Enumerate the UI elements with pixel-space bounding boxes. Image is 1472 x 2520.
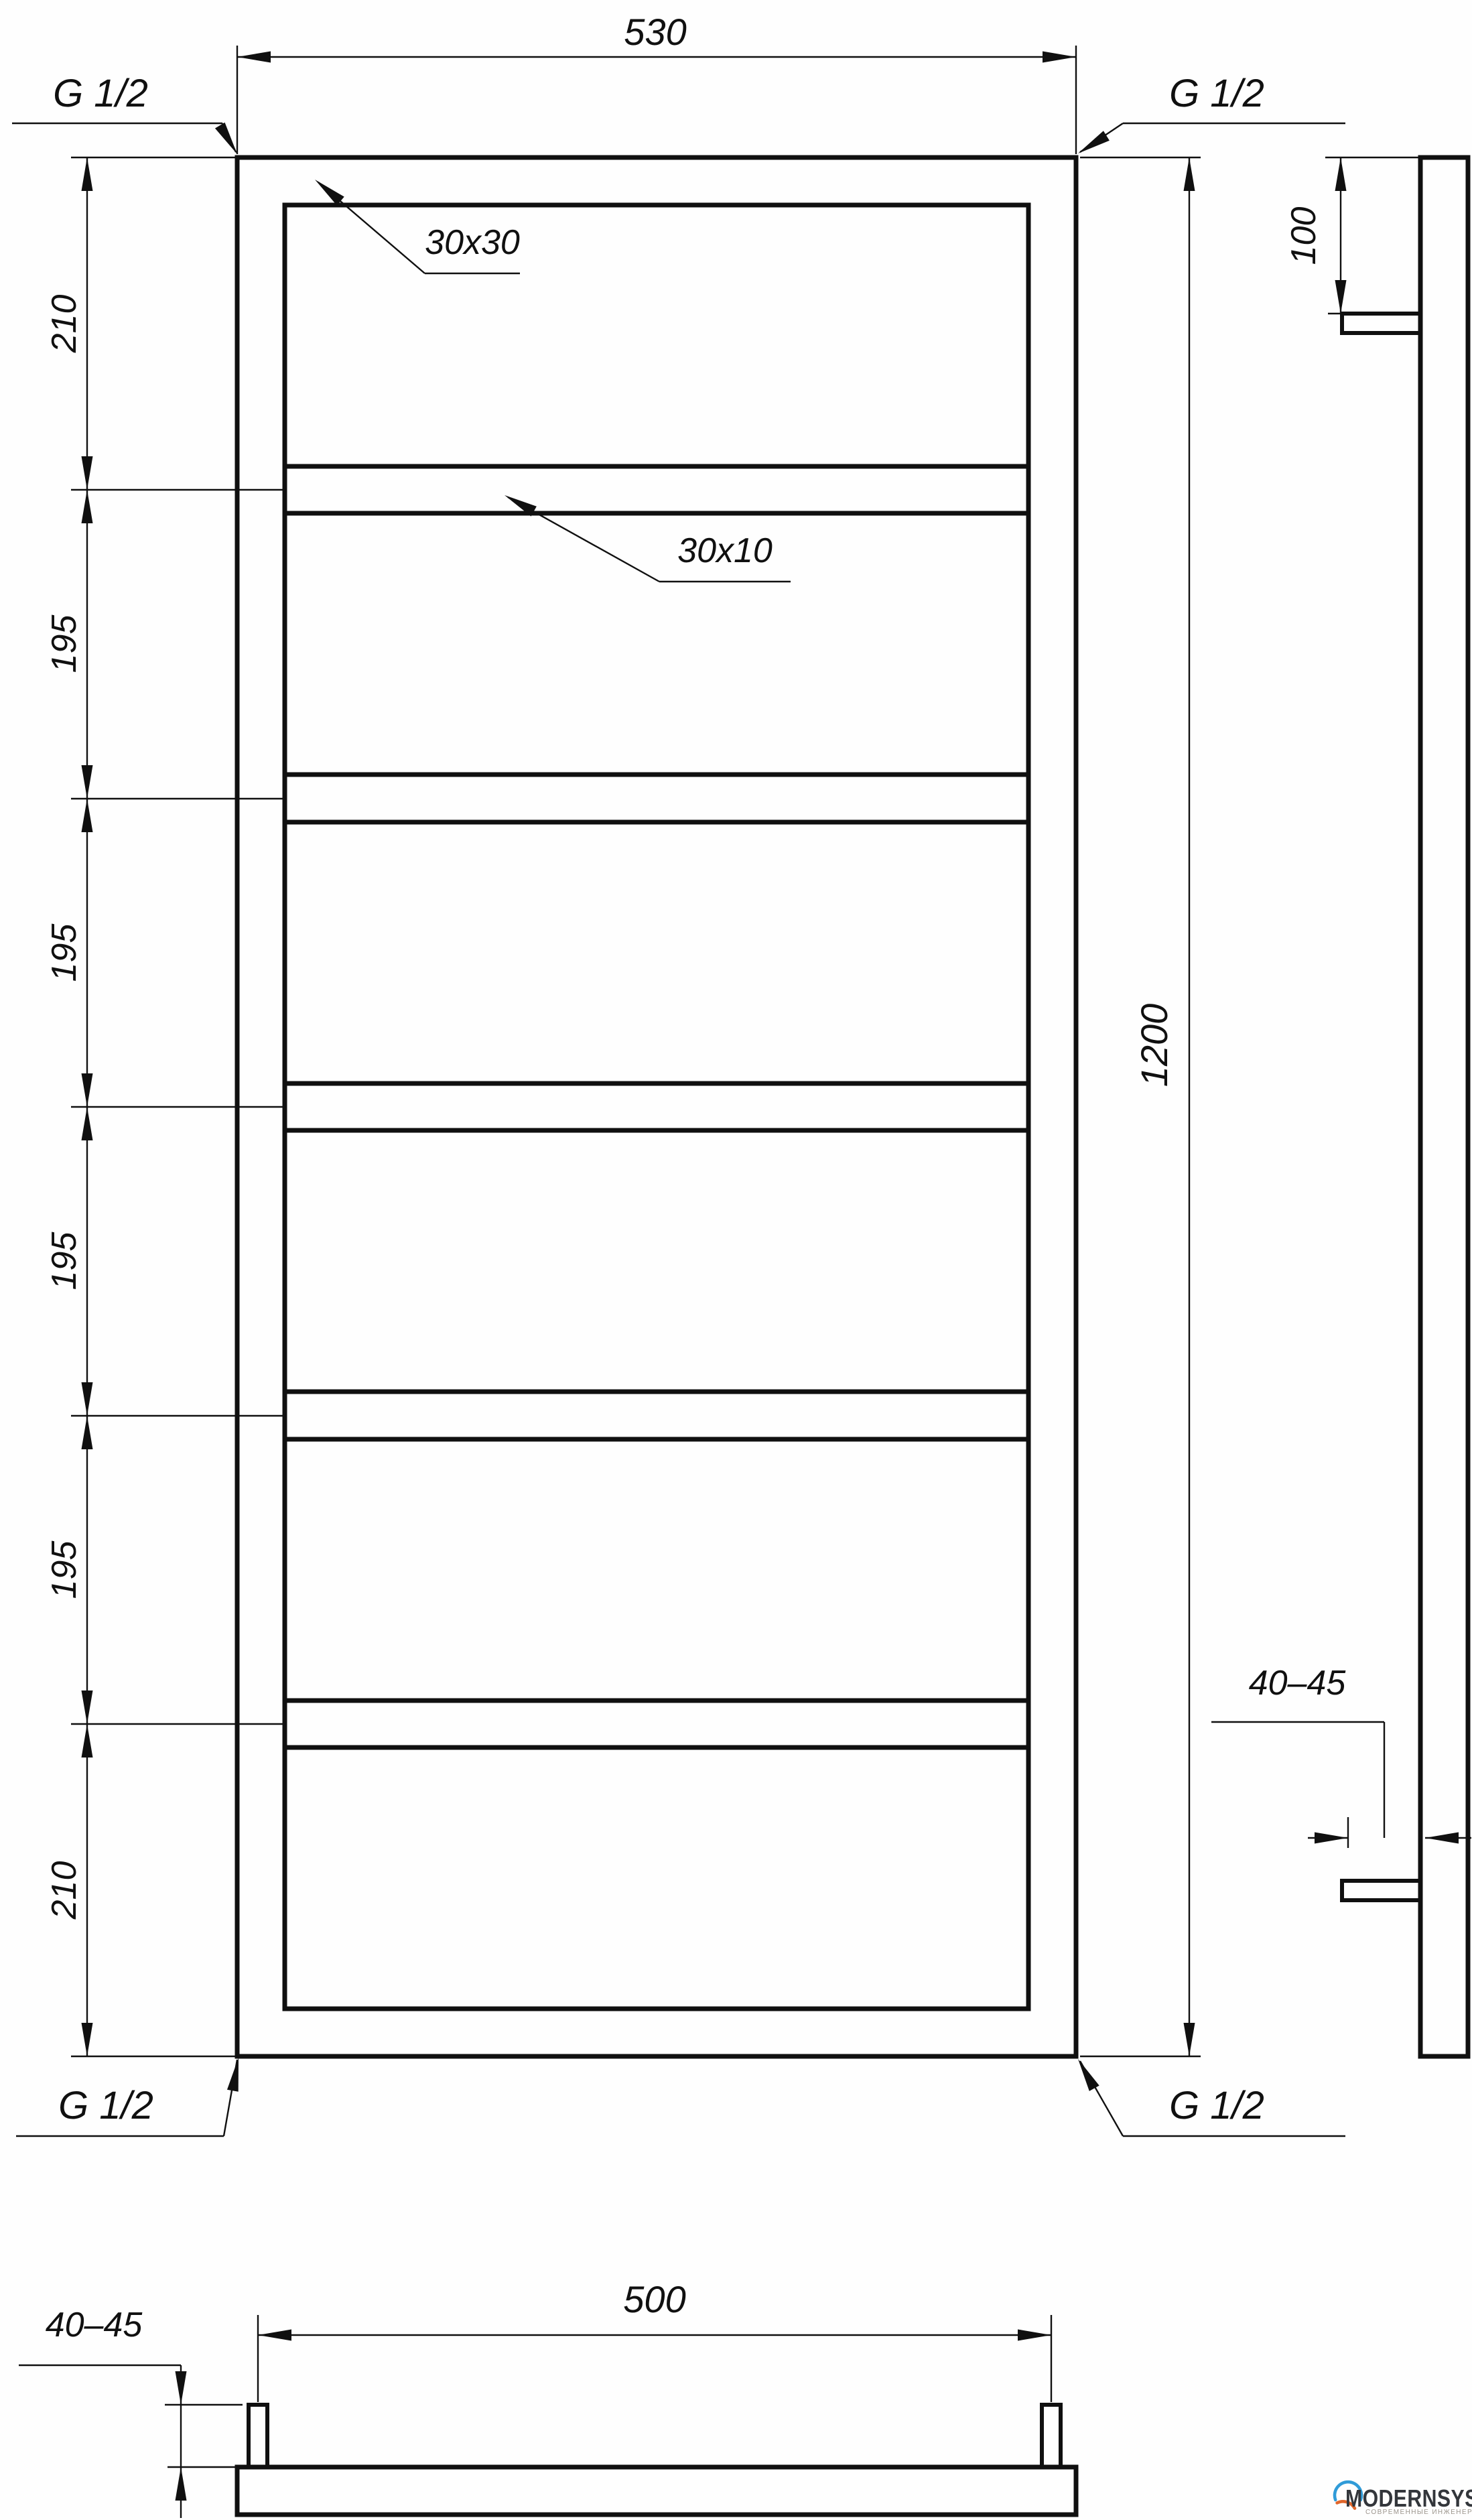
dim-1200 [1080, 157, 1201, 2056]
dim-40-45-bottom-label: 40–45 [46, 2308, 143, 2342]
drawing-linework [0, 0, 1472, 2520]
crossbar-profile-label: 30x10 [677, 533, 773, 568]
chain-label-195-2: 195 [47, 924, 82, 982]
dim-40-45-side [1211, 1722, 1471, 1848]
dim-40-45-side-label: 40–45 [1249, 1666, 1346, 1701]
dim-40-45-bottom [19, 2365, 243, 2518]
chain-label-195-3: 195 [47, 1232, 82, 1290]
chain-label-210-top: 210 [47, 295, 82, 353]
dim-chain-left [71, 157, 283, 2056]
dim-500 [258, 2315, 1051, 2402]
dim-100 [1325, 157, 1419, 314]
fitting-label-bottom-right: G 1/2 [1169, 2086, 1264, 2125]
side-view-brackets [1342, 314, 1420, 1900]
side-view-tube [1420, 157, 1468, 2056]
dim-100-label: 100 [1286, 207, 1321, 265]
fitting-label-top-left: G 1/2 [53, 74, 148, 113]
dim-500-label: 500 [623, 2281, 685, 2318]
front-view-crossbars [285, 466, 1028, 1747]
front-view-frame-outline [237, 157, 1076, 2056]
leader-g12-top-right [1075, 123, 1345, 158]
fitting-label-bottom-left: G 1/2 [58, 2086, 153, 2125]
logo-tagline: СОВРЕМЕННЫЕ ИНЖЕНЕРНЫЕ СИСТЕМЫ [1365, 2509, 1472, 2516]
bottom-view-brackets [249, 2405, 1061, 2467]
modernsys-logo: MODERNSYS СОВРЕМЕННЫЕ ИНЖЕНЕРНЫЕ СИСТЕМЫ [1331, 2474, 1472, 2519]
frame-profile-label: 30x30 [425, 225, 520, 260]
dim-530-label: 530 [624, 13, 686, 51]
bottom-view-tube [237, 2467, 1076, 2515]
dim-1200-label: 1200 [1136, 1004, 1173, 1087]
chain-label-195-4: 195 [47, 1541, 82, 1599]
chain-label-210-bottom: 210 [47, 1861, 82, 1920]
chain-label-195-1: 195 [47, 615, 82, 673]
leader-g12-top-left [12, 123, 242, 157]
dim-530 [237, 46, 1076, 154]
drawing-canvas: 530 G 1/2 G 1/2 G 1/2 G 1/2 30x30 30x10 … [0, 0, 1472, 2520]
fitting-label-top-right: G 1/2 [1169, 74, 1264, 113]
